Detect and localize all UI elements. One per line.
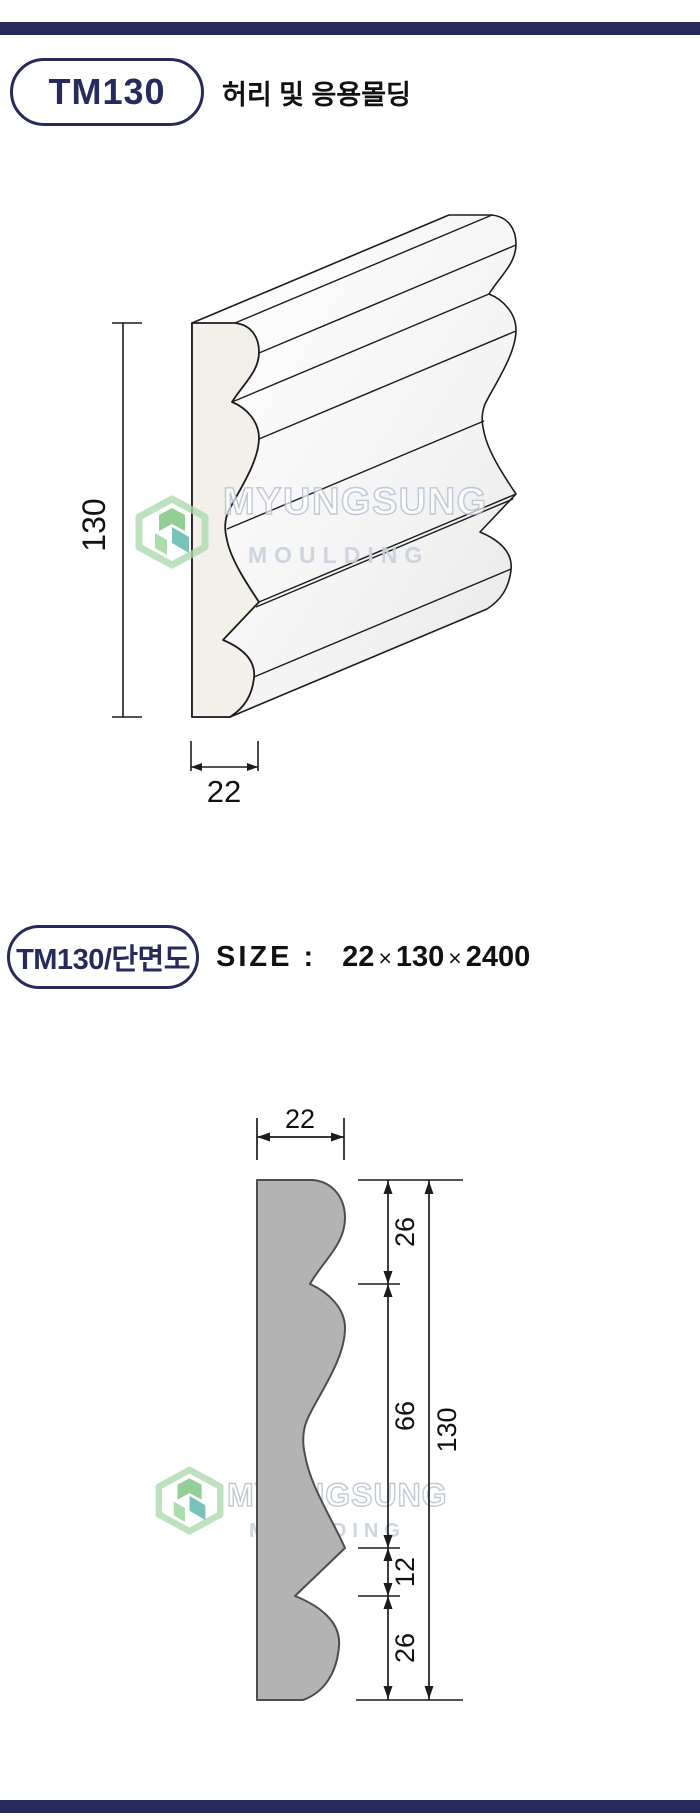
size-spec-row: SIZE : 22 × 130 × 2400 (216, 925, 530, 989)
watermark-sub-text: MOULDING (248, 542, 429, 568)
top-rule-bar (0, 22, 700, 35)
seg-notch-label: 12 (390, 1557, 420, 1587)
myungsung-logo-icon (159, 1470, 220, 1531)
product-category-title: 허리 및 응용몰딩 (222, 58, 411, 126)
seg-top-label: 26 (390, 1217, 420, 1247)
dim-22-section-label: 22 (285, 1104, 315, 1134)
multiply-sign: × (378, 945, 391, 972)
size-width: 22 (342, 941, 374, 974)
moulding-3d-drawing: MYUNGSUNG MOULDING 130 22 (0, 150, 700, 840)
product-code-badge: TM130 (10, 58, 204, 126)
dim-22-3d-label: 22 (207, 774, 241, 809)
moulding-section-drawing: MYUNGSUNG MOULDING 22 (0, 1080, 700, 1740)
moulding-profile-shape (257, 1180, 345, 1700)
dim-130-3d-label: 130 (76, 498, 112, 551)
total-dim-label: 130 (432, 1407, 462, 1452)
seg-mid-label: 66 (390, 1401, 420, 1431)
bottom-rule-bar (0, 1800, 700, 1813)
size-length: 2400 (466, 941, 531, 974)
section-code-badge: TM130/단면도 (7, 925, 199, 989)
size-label: SIZE : (216, 941, 316, 974)
section-code: TM130/단면도 (16, 936, 190, 978)
size-height: 130 (396, 941, 444, 974)
product-code: TM130 (48, 71, 165, 113)
seg-bottom-label: 26 (390, 1633, 420, 1663)
watermark-brand-text: MYUNGSUNG (223, 481, 488, 523)
multiply-sign: × (448, 945, 461, 972)
catalog-page: TM130 허리 및 응용몰딩 (0, 0, 700, 1820)
